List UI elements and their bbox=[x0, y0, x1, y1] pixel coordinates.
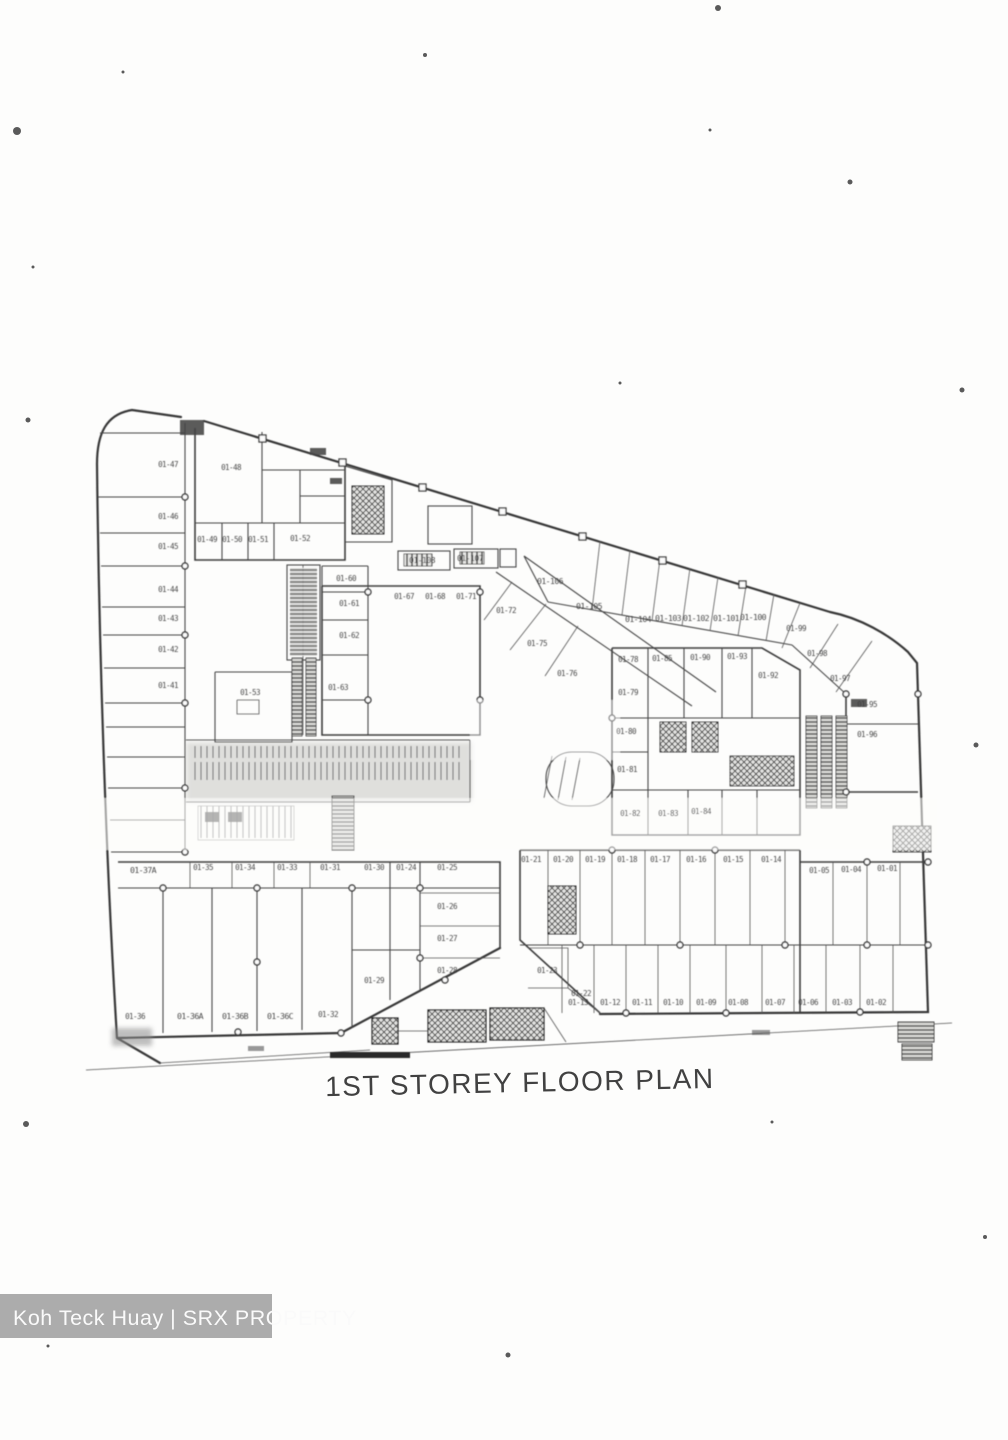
unit-label-01-08: 01-08 bbox=[728, 998, 749, 1007]
shopfront-ticks bbox=[190, 746, 464, 780]
unit-label-01-60: 01-60 bbox=[336, 574, 357, 583]
unit-label-01-104: 01-104 bbox=[625, 614, 652, 624]
illegible-mark bbox=[248, 1046, 264, 1051]
unit-label-01-30: 01-30 bbox=[364, 863, 385, 872]
unit-label-01-29: 01-29 bbox=[364, 976, 385, 985]
unit-label-01-85: 01-85 bbox=[652, 654, 672, 663]
unit-label-01-47: 01-47 bbox=[158, 460, 178, 469]
unit-label-01-27: 01-27 bbox=[437, 934, 457, 943]
unit-label-01-18: 01-18 bbox=[617, 855, 638, 864]
unit-label-01-17: 01-17 bbox=[650, 855, 670, 864]
floor-plan-drawing: 01-4701-4601-4501-4401-4301-4201-4101-48… bbox=[0, 0, 1008, 1440]
unit-label-01-48: 01-48 bbox=[221, 463, 242, 472]
unit-label-01-23: 01-23 bbox=[537, 966, 557, 975]
escalator-bar bbox=[821, 716, 832, 808]
scan-fade bbox=[88, 798, 938, 850]
escalator-top-steps bbox=[290, 568, 317, 656]
unit-label-01-68: 01-68 bbox=[425, 592, 446, 601]
watermark: Koh Teck Huay | SRX PROPERTY bbox=[0, 1294, 357, 1338]
unit-label-01-36: 01-36 bbox=[125, 1012, 146, 1021]
unit-label-01-96: 01-96 bbox=[857, 730, 878, 739]
entrance-canopy bbox=[428, 1010, 486, 1042]
escalator-bar bbox=[292, 658, 302, 736]
unit-label-01-24: 01-24 bbox=[396, 863, 417, 872]
unit-label-01-01: 01-01 bbox=[877, 864, 898, 873]
unit-label-01-82: 01-82 bbox=[620, 809, 640, 818]
watermark-text: Koh Teck Huay | SRX PROPERTY bbox=[13, 1306, 357, 1330]
unit-label-01-51: 01-51 bbox=[248, 535, 269, 544]
unit-label-01-61: 01-61 bbox=[339, 599, 360, 608]
unit-label-01-31: 01-31 bbox=[320, 863, 341, 872]
small-room bbox=[428, 506, 472, 544]
unit-label-01-41: 01-41 bbox=[158, 681, 179, 690]
unit-label-01-06: 01-06 bbox=[798, 998, 819, 1007]
illegible-mark bbox=[330, 478, 342, 484]
unit-label-01-07: 01-07 bbox=[765, 998, 785, 1007]
unit-label-01-106: 01-106 bbox=[537, 576, 564, 586]
scan-fade bbox=[470, 700, 620, 760]
unit-label-01-33: 01-33 bbox=[277, 863, 297, 872]
unit-label-01-35: 01-35 bbox=[193, 863, 213, 872]
unit-label-01-81: 01-81 bbox=[617, 765, 638, 774]
unit-label-01-02: 01-02 bbox=[866, 998, 886, 1007]
lift-shaft bbox=[352, 486, 384, 534]
entrance-step-bar bbox=[330, 1052, 410, 1058]
unit-label-01-10: 01-10 bbox=[663, 998, 684, 1007]
unit-label-01-79: 01-79 bbox=[618, 688, 639, 697]
unit-label-01-53: 01-53 bbox=[240, 688, 260, 697]
unit-label-01-36A: 01-36A bbox=[177, 1011, 204, 1021]
unit-label-01-37A: 01-37A bbox=[130, 865, 157, 875]
unit-label-01-43: 01-43 bbox=[158, 614, 178, 623]
unit-label-01-34: 01-34 bbox=[235, 863, 256, 872]
escalator-bar bbox=[806, 716, 817, 808]
unit-label-01-14: 01-14 bbox=[761, 855, 782, 864]
unit-label-01-09: 01-09 bbox=[696, 998, 717, 1007]
unit-label-01-100: 01-100 bbox=[740, 612, 767, 622]
unit-label-01-49: 01-49 bbox=[197, 535, 218, 544]
unit-label-01-71: 01-71 bbox=[456, 592, 477, 601]
unit-label-01-97: 01-97 bbox=[830, 674, 850, 683]
unit-label-01-62: 01-62 bbox=[339, 631, 359, 640]
unit-label-01-36C: 01-36C bbox=[267, 1011, 294, 1021]
unit-label-01-46: 01-46 bbox=[158, 512, 179, 521]
plan-title: 1ST STOREY FLOOR PLAN bbox=[325, 1063, 715, 1102]
unit-label-01-72: 01-72 bbox=[496, 606, 516, 615]
unit-label-01-67: 01-67 bbox=[394, 592, 414, 601]
unit-label-01-78: 01-78 bbox=[618, 655, 639, 664]
escalator-bar bbox=[306, 658, 316, 736]
unit-label-01-80: 01-80 bbox=[616, 727, 637, 736]
illegible-mark bbox=[752, 1030, 770, 1035]
unit-label-01-22: 01-22 bbox=[571, 989, 591, 998]
unit-label-01-11: 01-11 bbox=[632, 998, 653, 1007]
unit-label-01-105: 01-105 bbox=[576, 601, 603, 611]
unit-label-01-28: 01-28 bbox=[437, 966, 458, 975]
stair-shaft bbox=[548, 886, 576, 934]
unit-label-01-42: 01-42 bbox=[158, 645, 178, 654]
unit-label-01-101: 01-101 bbox=[713, 613, 740, 623]
unit-label-01-05: 01-05 bbox=[809, 866, 829, 875]
unit-label-01-90: 01-90 bbox=[690, 653, 711, 662]
entrance-structure bbox=[372, 1018, 398, 1044]
unit-label-01-63: 01-63 bbox=[328, 683, 348, 692]
unit-label-01-99: 01-99 bbox=[786, 624, 807, 633]
unit-label-01-75: 01-75 bbox=[527, 639, 547, 648]
unit-label-01-36B: 01-36B bbox=[222, 1011, 249, 1021]
unit-label-01-45: 01-45 bbox=[158, 542, 178, 551]
unit-label-01-32: 01-32 bbox=[318, 1010, 338, 1019]
entrance-canopy bbox=[490, 1008, 544, 1040]
unit-label-01-19: 01-19 bbox=[585, 855, 606, 864]
exterior-steps bbox=[902, 1044, 932, 1060]
unit-label-01-16: 01-16 bbox=[686, 855, 707, 864]
unit-label-01-12: 01-12 bbox=[600, 998, 620, 1007]
unit-label-01-93: 01-93 bbox=[727, 652, 747, 661]
entrance-canopy bbox=[180, 420, 204, 435]
unit-label-01-04: 01-04 bbox=[841, 865, 862, 874]
unit-label-01-107: 01-107 bbox=[457, 553, 484, 563]
unit-label-01-98: 01-98 bbox=[807, 649, 828, 658]
unit-label-01-83: 01-83 bbox=[658, 809, 678, 818]
unit-label-01-13: 01-13 bbox=[568, 998, 588, 1007]
unit-label-01-102: 01-102 bbox=[683, 613, 710, 623]
exterior-steps bbox=[898, 1022, 934, 1042]
scan-smudge bbox=[112, 1028, 152, 1046]
unit-label-01-25: 01-25 bbox=[437, 863, 457, 872]
unit-label-01-03: 01-03 bbox=[832, 998, 852, 1007]
unit-label-01-15: 01-15 bbox=[723, 855, 743, 864]
services-room bbox=[730, 756, 794, 786]
unit-label-01-20: 01-20 bbox=[553, 855, 574, 864]
unit-label-01-108: 01-108 bbox=[409, 555, 436, 565]
unit-label-01-52: 01-52 bbox=[290, 534, 310, 543]
unit-label-01-50: 01-50 bbox=[222, 535, 243, 544]
kiosk bbox=[500, 549, 516, 567]
unit-label-01-76: 01-76 bbox=[557, 669, 578, 678]
unit-label-01-44: 01-44 bbox=[158, 585, 179, 594]
unit-label-01-103: 01-103 bbox=[655, 613, 682, 623]
illegible-mark bbox=[310, 448, 326, 455]
plan-linework: 01-4701-4601-4501-4401-4301-4201-4101-48… bbox=[86, 410, 952, 1070]
unit-label-01-92: 01-92 bbox=[758, 671, 778, 680]
lift-shaft bbox=[692, 722, 718, 752]
scanned-floor-plan-page: 01-4701-4601-4501-4401-4301-4201-4101-48… bbox=[0, 0, 1008, 1440]
lift-shaft bbox=[660, 722, 686, 752]
unit-label-01-95: 01-95 bbox=[857, 700, 877, 709]
unit-label-01-84: 01-84 bbox=[691, 807, 712, 816]
unit-label-01-21: 01-21 bbox=[521, 855, 542, 864]
unit-label-01-26: 01-26 bbox=[437, 902, 458, 911]
